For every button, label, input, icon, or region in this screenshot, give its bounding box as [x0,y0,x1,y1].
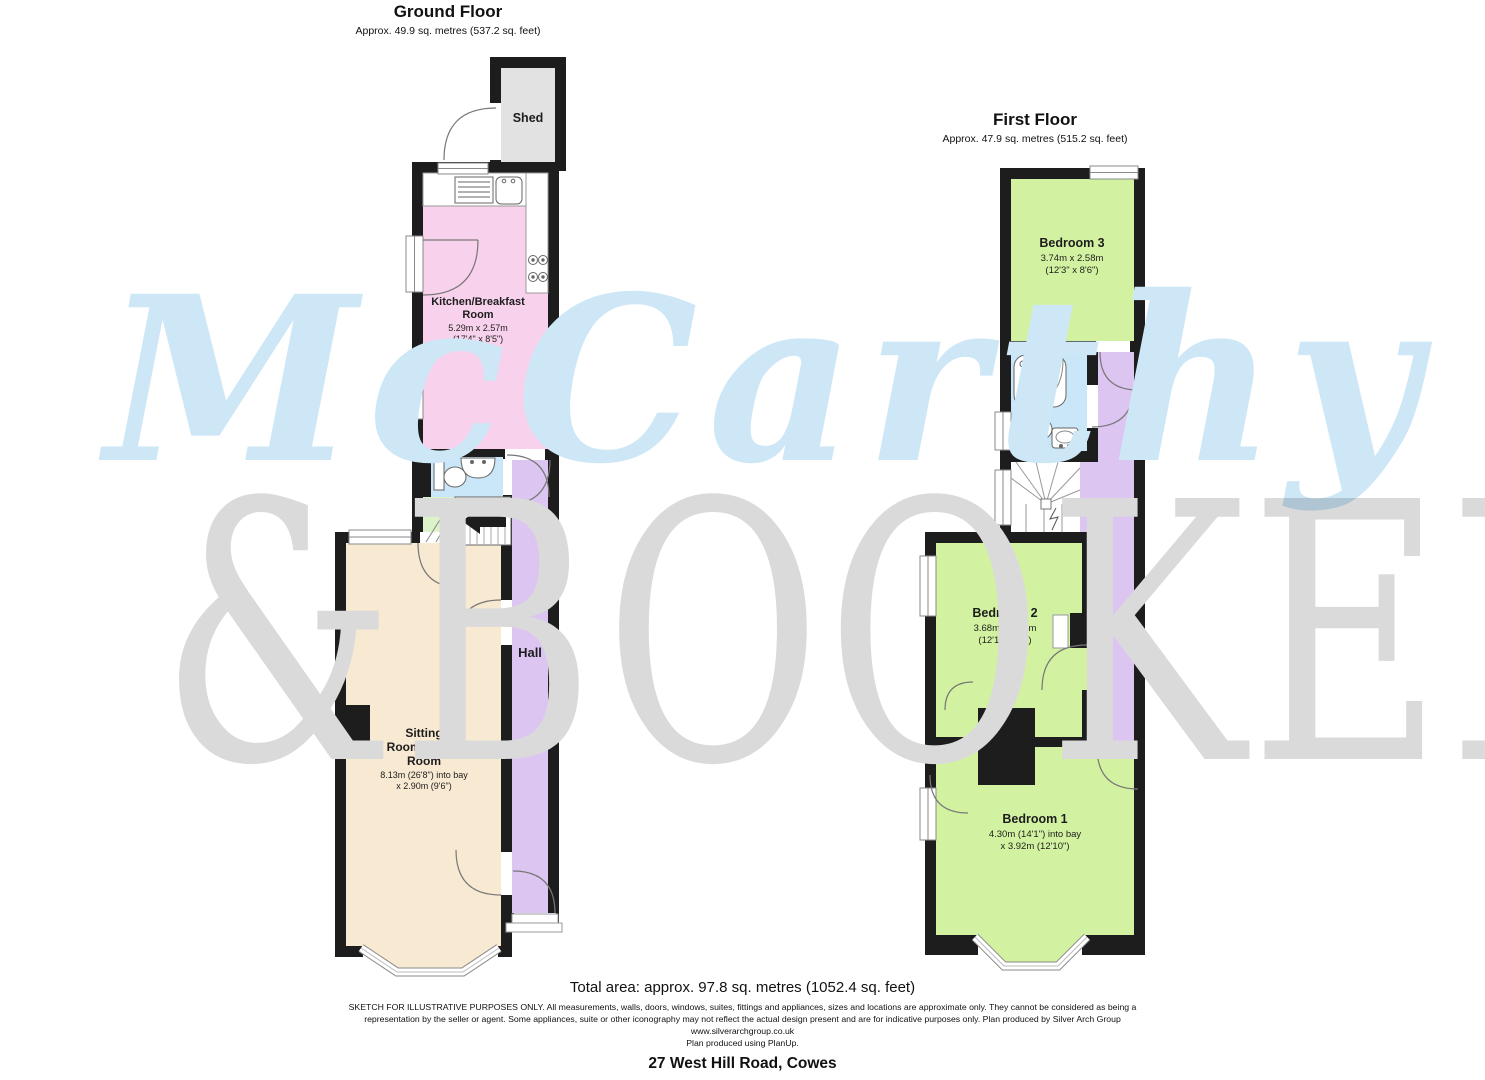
ground-floor-plan: Shed Kitchen/Breakfast Room 5.29m x 2.57… [335,57,566,972]
hall-right-wall [548,460,559,925]
kitchen-left-window-2 [406,363,423,419]
wc-door-gap [503,459,512,495]
kitchen-dim-2: (17'4" x 8'5") [453,334,503,344]
bedroom1-dim-1: 4.30m (14'1") into bay [989,829,1082,840]
hall-room [512,460,548,913]
ff-chimney-breast [978,708,1035,785]
disclaimer-line-1: SKETCH FOR ILLUSTRATIVE PURPOSES ONLY. A… [0,1001,1485,1013]
kitchen-left-window-1 [406,236,423,292]
shed-door-arc [444,108,496,160]
sitting-label-2: Room/Dining [387,740,462,754]
sitting-label-3: Room [407,754,441,768]
kitchen-top-window [438,163,488,174]
sitting-bay-window [361,946,499,972]
sitting-dim-2: x 2.90m (9'6") [396,781,451,791]
disclaimer-line-2: representation by the seller or agent. S… [0,1013,1485,1025]
property-address: 27 West Hill Road, Cowes [0,1055,1485,1073]
first-floor-plan: Bedroom 3 3.74m x 2.58m (12'3" x 8'6") B… [920,166,1145,966]
bedroom1-label: Bedroom 1 [1002,812,1067,826]
bedroom2-dim-2: (12'1" x 9'7") [978,635,1031,646]
sitting-label-1: Sitting [405,726,442,740]
ground-floor-title-block: Ground Floor Approx. 49.9 sq. metres (53… [293,2,603,37]
floor-plan-canvas: Shed Kitchen/Breakfast Room 5.29m x 2.57… [0,0,1485,1080]
bathroom-window [995,412,1011,450]
bedroom1-bay-window [975,935,1087,966]
landing-upper [1098,352,1134,462]
ff-stairs-well [1011,462,1080,532]
sitting-mid-door-gap [501,600,512,645]
bedroom1-dim-2: x 3.92m (12'10") [1000,841,1069,852]
first-floor-title: First Floor [880,110,1190,130]
shed-label: Shed [513,111,544,125]
floorplan-page: Shed Kitchen/Breakfast Room 5.29m x 2.57… [0,0,1485,1080]
bedroom2-cupboard [1053,615,1068,648]
kitchen-dim-1: 5.29m x 2.57m [448,323,508,333]
bedroom2-label: Bedroom 2 [972,606,1037,620]
shed-door-gap [490,103,501,160]
landing-corridor [1093,532,1134,747]
total-area: Total area: approx. 97.8 sq. metres (105… [0,979,1485,996]
shower-icon [1014,355,1066,407]
ground-floor-subtitle: Approx. 49.9 sq. metres (537.2 sq. feet) [293,25,603,37]
bedroom3-door-gap [1096,341,1130,352]
bathroom-door-gap [1087,385,1098,428]
bedroom3-window [1090,166,1138,179]
bedroom3-dim-2: (12'3" x 8'6") [1045,265,1098,276]
sitting-top-window [349,530,411,544]
kitchen-label-1: Kitchen/Breakfast [431,296,525,308]
first-floor-subtitle: Approx. 47.9 sq. metres (515.2 sq. feet) [880,133,1190,145]
front-door-sill [506,914,562,932]
bedroom2-door-gap [1082,648,1093,690]
sitting-dim-1: 8.13m (26'8") into bay [380,770,468,780]
bedroom3-dim-1: 3.74m x 2.58m [1041,253,1104,264]
sitting-low-door-gap [501,852,512,895]
website: www.silverarchgroup.co.uk [0,1025,1485,1037]
sitting-chimney-breast [346,705,370,741]
ground-floor-title: Ground Floor [293,2,603,22]
hall-label: Hall [518,645,542,660]
bedroom2-dim-1: 3.68m x 2.93m [974,623,1037,634]
stairs-window [995,470,1011,525]
bedroom2-wall-stub [1070,613,1093,648]
bedroom3-label: Bedroom 3 [1039,236,1104,250]
produced-with: Plan produced using PlanUp. [0,1037,1485,1049]
first-floor-title-block: First Floor Approx. 47.9 sq. metres (515… [880,110,1190,145]
landing-mid [1080,462,1134,532]
sink-icon [455,177,522,204]
basin-icon [1052,428,1078,448]
disclaimer: SKETCH FOR ILLUSTRATIVE PURPOSES ONLY. A… [0,1001,1485,1049]
bedroom2-window [920,556,936,616]
kitchen-label-2: Room [462,309,493,321]
